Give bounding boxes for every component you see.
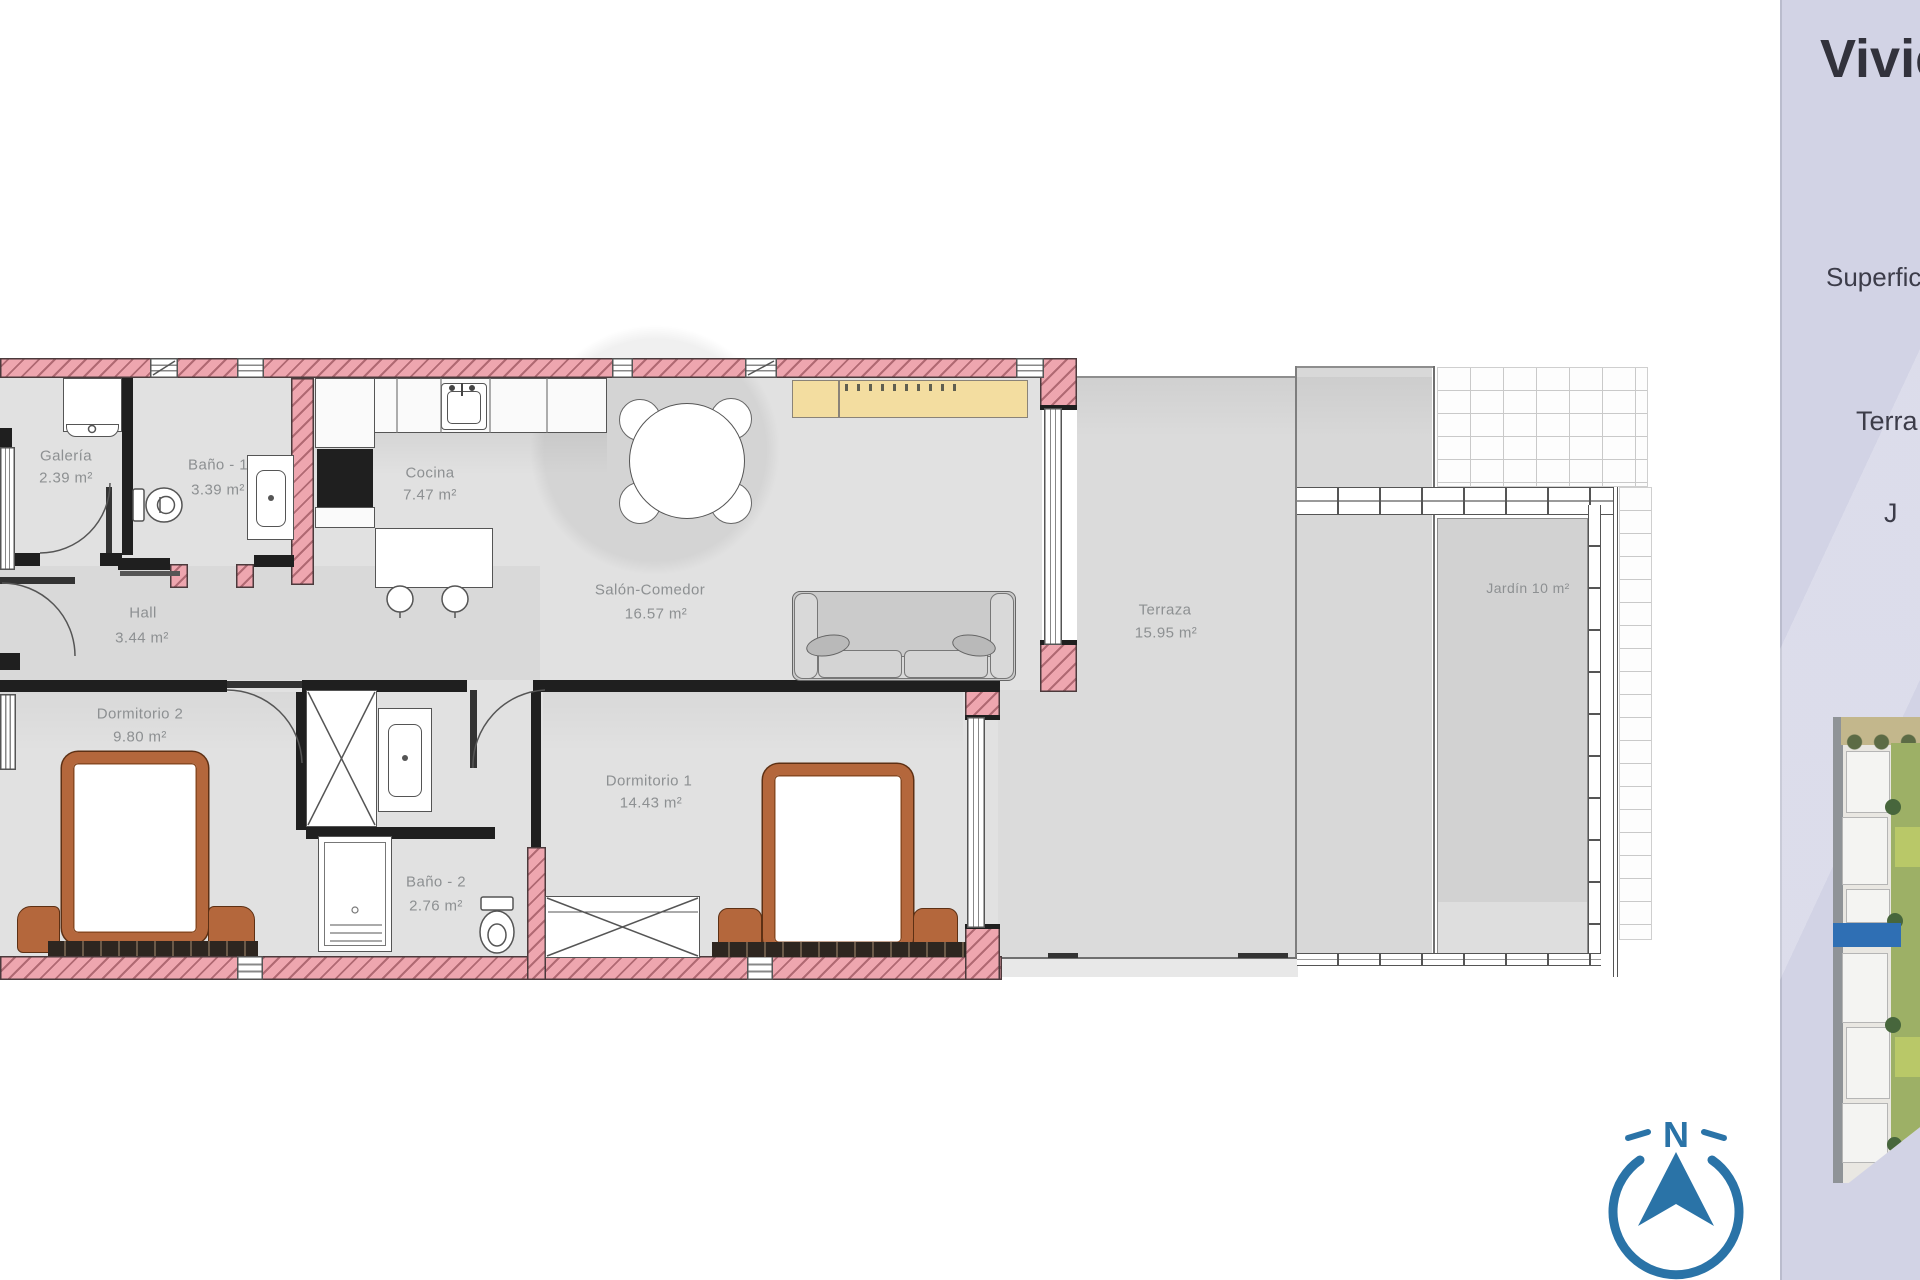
label-dorm2-name: Dormitorio 2 — [97, 706, 184, 723]
floorplan-page: Galería 2.39 m² Baño - 1 3.39 m² Cocina … — [0, 0, 1920, 1280]
garden-fence-bottom — [1297, 953, 1601, 966]
label-dorm1-name: Dormitorio 1 — [606, 773, 693, 790]
label-hall-area: 3.44 m² — [115, 630, 169, 647]
siteplan-building2 — [1842, 817, 1888, 885]
window-top-vent2 — [745, 358, 777, 378]
wall-left-seg1 — [0, 428, 12, 448]
plot-boundary-line — [1613, 487, 1618, 977]
label-terraza-name: Terraza — [1139, 602, 1192, 619]
sofa-arm-right — [990, 593, 1014, 679]
wall-bottom — [0, 956, 1002, 980]
window-left-upper — [0, 447, 15, 570]
terrace-side-strip — [1297, 367, 1432, 957]
wall-bano2-right-upper — [531, 692, 541, 847]
siteplan-thumbnail — [1833, 717, 1920, 1183]
window-cocina — [612, 358, 633, 378]
siteplan-building3 — [1846, 889, 1890, 923]
siteplan-lawn-patch1 — [1895, 827, 1920, 867]
wall-salon-right-upper — [1040, 358, 1077, 410]
window-dorm1-south — [747, 956, 773, 980]
wall-corridor-c — [533, 680, 1000, 692]
compass-north-label: N — [1663, 1114, 1689, 1155]
closet-hall — [306, 690, 377, 827]
bano1-sink — [256, 470, 286, 527]
terrace-threshold-mark — [1048, 953, 1078, 958]
garden-left-boundary — [1433, 366, 1435, 956]
paving-tiles-right — [1619, 487, 1652, 940]
terrace-strip-top-edge — [1297, 366, 1433, 368]
label-dorm2-area: 9.80 m² — [113, 729, 167, 746]
siteplan-building1 — [1846, 751, 1890, 813]
fridge — [317, 449, 373, 507]
label-dorm1-area: 14.43 m² — [620, 795, 682, 812]
label-jardin: Jardín 10 m² — [1486, 580, 1569, 596]
closet-dorm1 — [545, 896, 700, 958]
kitchen-island — [375, 528, 493, 588]
door-leaf-entrance — [0, 577, 75, 584]
siteplan-building4 — [1842, 953, 1888, 1023]
sideboard-divider — [838, 381, 840, 417]
siteplan-palm1 — [1885, 799, 1901, 815]
siteplan-building6 — [1842, 1103, 1888, 1163]
window-dorm1-terrace — [967, 717, 985, 928]
garden-fence-top — [1297, 487, 1613, 515]
terrace-floor-lower-left — [998, 690, 1077, 958]
label-galeria-area: 2.39 m² — [39, 470, 93, 487]
door-leaf-bano1 — [120, 571, 180, 576]
terrace-bottom-band — [998, 959, 1298, 977]
label-galeria-name: Galería — [40, 448, 92, 465]
terrace-divider-line — [1295, 366, 1297, 958]
door-leaf-dorm2 — [227, 681, 302, 688]
wall-kitchen-left — [291, 378, 314, 585]
wall-galeria-bano1 — [122, 378, 133, 555]
compass-icon: N — [1613, 1114, 1739, 1275]
bed-dorm1 — [763, 764, 913, 954]
siteplan-palm3 — [1885, 1017, 1901, 1033]
label-salon-area: 16.57 m² — [625, 606, 687, 623]
wall-bano2-right — [527, 847, 546, 980]
siteplan-lawn-patch2 — [1895, 1037, 1920, 1077]
bano2-sink — [388, 724, 422, 797]
wall-left-seg2 — [0, 653, 20, 670]
shower-tray — [324, 842, 386, 946]
wall-dorm1-right-lower — [965, 927, 1000, 980]
door-leaf-dorm1 — [470, 690, 477, 768]
wall-bano1-south-a — [118, 558, 170, 570]
label-bano1-area: 3.39 m² — [191, 482, 245, 499]
window-dorm2-south — [237, 956, 263, 980]
terrace-threshold-mark2 — [1238, 953, 1288, 958]
label-salon-name: Salón-Comedor — [595, 582, 705, 599]
dining-table — [629, 403, 745, 519]
panel-terraza-text: Terra — [1856, 406, 1918, 437]
panel-superficie-text: Superfic — [1826, 262, 1920, 293]
panel-title: Vivie — [1820, 28, 1920, 90]
label-cocina-name: Cocina — [405, 465, 454, 482]
siteplan-building5 — [1846, 1027, 1890, 1099]
window-top-vent1 — [150, 358, 178, 378]
terrace-top-edge — [1077, 376, 1297, 378]
window-bano1 — [237, 358, 264, 378]
label-bano2-area: 2.76 m² — [409, 898, 463, 915]
kitchen-counter-low — [315, 507, 375, 528]
kitchen-counter-left — [315, 378, 375, 448]
paving-tiles-top — [1437, 367, 1648, 487]
kitchen-sink-basin — [447, 391, 481, 424]
window-salon-top — [1016, 358, 1044, 378]
window-left-lower — [0, 694, 16, 770]
wall-salon-right-lower — [1040, 643, 1077, 692]
garden-fence-right — [1588, 505, 1601, 955]
door-leaf-galeria — [106, 487, 112, 553]
label-terraza-area: 15.95 m² — [1135, 625, 1197, 642]
panel-jardin-text: J — [1884, 498, 1898, 529]
wall-bano1-door-jamb-left — [170, 564, 188, 588]
washing-machine-front — [66, 424, 119, 437]
bed-dorm2 — [62, 752, 208, 944]
wall-corridor-a — [0, 680, 227, 692]
label-hall-name: Hall — [129, 605, 156, 622]
label-bano1-name: Baño - 1 — [188, 457, 248, 474]
siteplan-blue-bar — [1833, 923, 1901, 947]
sofa-arm-left — [794, 593, 818, 679]
wall-bano1-door-jamb-right — [236, 564, 254, 588]
bed-dorm1-headboard — [712, 942, 966, 957]
window-salon-terrace — [1044, 408, 1062, 645]
label-bano2-name: Baño - 2 — [406, 874, 466, 891]
wall-bano1-south-b — [254, 555, 294, 567]
sideboard-teeth — [845, 384, 965, 391]
label-cocina-area: 7.47 m² — [403, 487, 457, 504]
bed-dorm2-headboard — [48, 941, 258, 956]
